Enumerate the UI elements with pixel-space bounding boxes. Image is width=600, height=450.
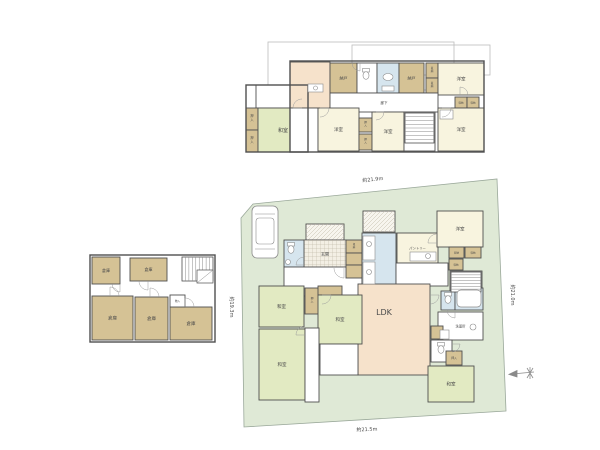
door-swing	[150, 288, 159, 297]
room-label: 廊下	[381, 100, 389, 105]
basin-icon	[383, 74, 393, 81]
bathtub-icon	[457, 290, 481, 307]
hatch-overlay	[306, 224, 344, 240]
dimension-label: 約19.3m	[228, 296, 235, 317]
door-swing	[112, 284, 120, 292]
room-label: 押入	[311, 296, 314, 303]
room-label: 収納	[453, 262, 459, 266]
room-label: 収納	[458, 100, 464, 104]
room-label: 収納	[431, 81, 434, 88]
counter-fixture	[382, 86, 394, 91]
room	[346, 253, 362, 265]
room-label: 倉庫	[102, 267, 110, 273]
toilet-icon	[363, 69, 370, 80]
sink-icon	[470, 324, 476, 330]
room-label: 押入	[364, 120, 367, 127]
room	[290, 108, 318, 152]
toilet-icon	[445, 293, 452, 304]
room-label: 洋室	[334, 126, 343, 133]
room-label: 収納	[454, 250, 460, 254]
dimension-label: 約21.0m	[509, 284, 516, 305]
room-label: 倉庫	[108, 315, 117, 322]
sink-icon	[426, 254, 431, 259]
room-label: 洋室	[457, 126, 466, 133]
floorplan-viewer: 約21.9m約21.5m約19.3m約21.0m押入押入和室納戸納戸収納収納洋室…	[0, 0, 600, 450]
counter-fixture	[440, 110, 453, 119]
sink-icon	[367, 242, 372, 247]
room-label: 倉庫	[145, 266, 153, 272]
room	[318, 286, 342, 295]
room-label: 納戸	[340, 75, 348, 81]
floor-plan-image: 約21.9m約21.5m約19.3m約21.0m押入押入和室納戸納戸収納収納洋室…	[0, 0, 600, 450]
toilet-icon	[438, 343, 445, 354]
counter-fixture	[410, 252, 436, 261]
sink-icon	[314, 86, 318, 90]
toilet-icon	[288, 243, 295, 254]
sink-icon	[286, 260, 291, 265]
room	[358, 284, 430, 375]
room-label: パントリー	[409, 245, 426, 250]
room-label: 和室	[447, 381, 456, 388]
floor-plan-b1: 倉庫倉庫倉庫倉庫倉庫物入	[90, 255, 215, 342]
room-label: 押入	[451, 356, 457, 360]
room-label: 和室	[278, 361, 287, 368]
stairs	[451, 272, 481, 292]
room-label: 物入	[175, 299, 181, 303]
car-icon	[252, 206, 278, 258]
counter-fixture	[440, 330, 449, 339]
room-label: 洋室	[457, 76, 466, 83]
room	[320, 344, 358, 375]
counter-fixture	[363, 236, 375, 260]
room	[256, 85, 290, 108]
room	[346, 265, 362, 278]
dimension-label: 約21.9m	[362, 175, 384, 184]
room	[396, 263, 448, 286]
room-label: 納戸	[408, 75, 416, 81]
room-label: 洗面所	[456, 323, 467, 328]
room-label: 収納	[431, 66, 434, 73]
room-label: 和室	[278, 127, 288, 134]
floor-plan-2f: 押入押入和室納戸納戸収納収納洋室廊下収納収納洋室洋室押入押入洋室	[246, 42, 490, 152]
sink-icon	[367, 270, 372, 275]
stair-landing	[197, 270, 213, 283]
room-label: 収納	[470, 250, 476, 254]
room-label: 洋室	[384, 128, 393, 135]
compass-icon	[509, 367, 534, 379]
stairs	[405, 113, 434, 143]
room-label: LDK	[376, 308, 393, 317]
room-label: 和室	[336, 316, 345, 323]
room-label: 玄関	[321, 251, 329, 257]
dimension-label: 約21.5m	[356, 426, 377, 434]
room-label: 洋室	[456, 226, 465, 233]
door-swing	[139, 281, 148, 290]
room-label: 倉庫	[187, 320, 196, 327]
room	[305, 328, 319, 402]
room-label: 押入	[364, 137, 367, 144]
room-label: 収納	[470, 100, 476, 104]
door-swing	[185, 298, 194, 307]
room-label: 倉庫	[147, 315, 156, 322]
hatch-overlay	[363, 211, 395, 232]
room-label: 和室	[277, 303, 286, 310]
